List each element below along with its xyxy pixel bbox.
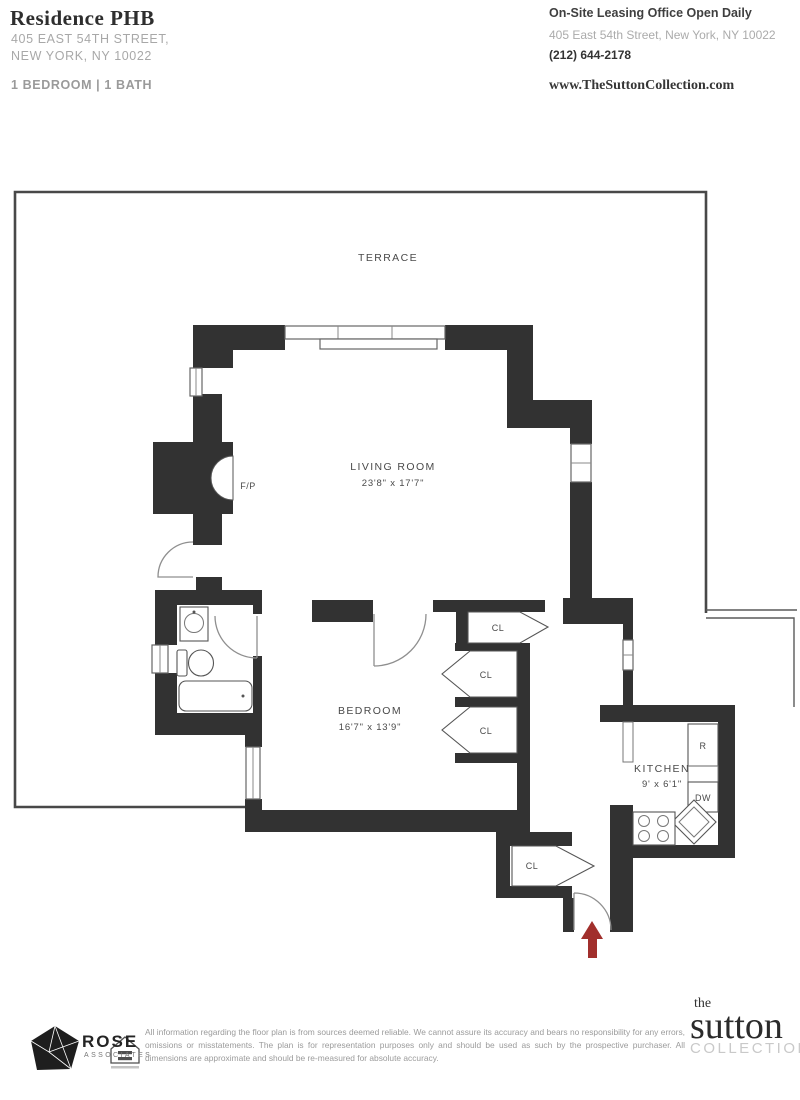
floorplan-flyer: Residence PHB 405 EAST 54TH STREET, NEW … — [0, 0, 800, 1100]
kitchen-dims: 9' x 6'1" — [642, 779, 682, 790]
fireplace-label: F/P — [240, 481, 256, 491]
bedroom-dims: 16'7" x 13'9" — [339, 722, 402, 733]
sutton-logo-name: sutton — [690, 1009, 800, 1043]
toilet-tank — [177, 650, 187, 676]
kitchen-label: KITCHEN — [634, 763, 690, 775]
bathtub — [179, 681, 252, 711]
terrace-door — [158, 542, 193, 577]
dishwasher-label: DW — [695, 793, 711, 803]
rose-associates-logo-icon — [31, 1026, 79, 1070]
closet-1-label: CL — [492, 623, 505, 633]
bathroom-door — [215, 616, 257, 658]
disclaimer-text: All information regarding the floor plan… — [145, 1026, 685, 1065]
bedroom-label: BEDROOM — [338, 705, 402, 717]
refrigerator-label: R — [700, 741, 707, 751]
rose-brand-name: ROSE — [82, 1032, 138, 1052]
closet-4-label: CL — [526, 861, 539, 871]
entry-closet-door — [512, 846, 594, 886]
living-room-label: LIVING ROOM — [350, 461, 435, 473]
entry-arrow — [581, 921, 603, 958]
floor-plan: TERRACE LIVING ROOM 23'8" x 17'7" BEDROO… — [0, 0, 800, 1100]
living-room-window — [285, 326, 445, 339]
kitchen-counter — [688, 766, 718, 782]
closet-2-label: CL — [480, 670, 493, 680]
sutton-collection-logo: the sutton COLLECTION — [690, 998, 800, 1057]
kitchen-cabinet — [623, 722, 633, 762]
toilet-bowl — [189, 650, 214, 676]
window-sill — [320, 339, 437, 349]
terrace-label: TERRACE — [358, 252, 418, 264]
living-room-dims: 23'8" x 17'7" — [362, 478, 425, 489]
closet-1-door — [468, 612, 548, 643]
sutton-logo-sub: COLLECTION — [690, 1040, 800, 1057]
stove — [633, 812, 675, 845]
rose-brand-subtitle: ASSOCIATES — [84, 1052, 152, 1059]
bedroom-door — [374, 614, 426, 666]
closet-3-label: CL — [480, 726, 493, 736]
